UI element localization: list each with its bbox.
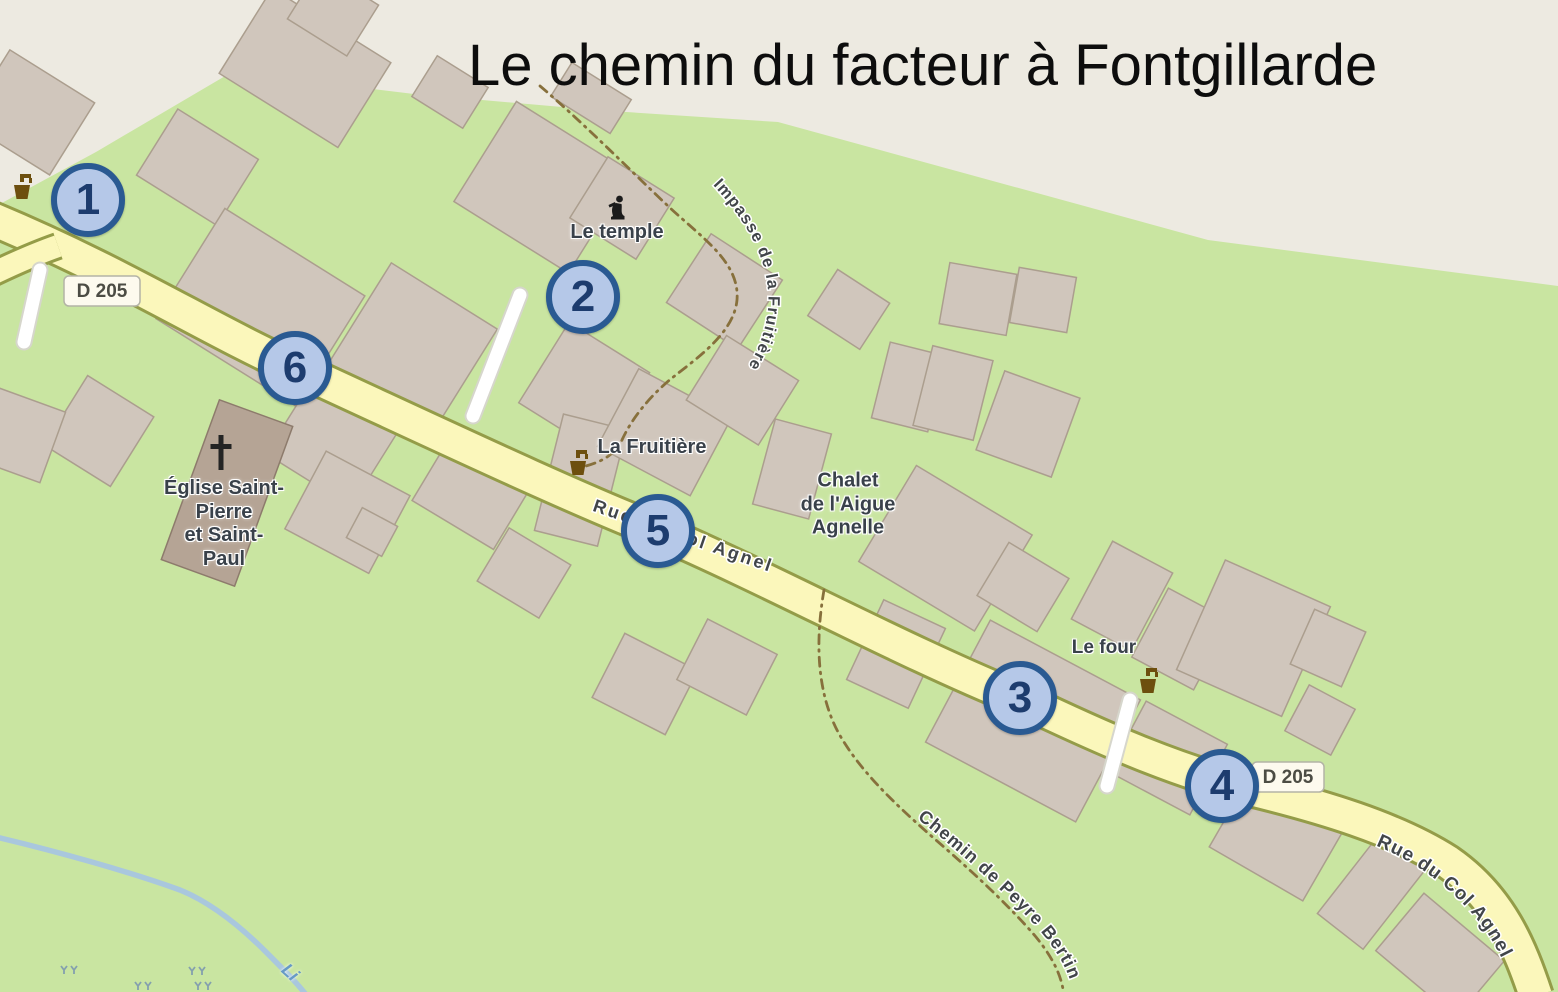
svg-text:D 205: D 205 <box>77 281 128 302</box>
map-canvas: Impasse de la Fruitière Chemin de Peyre … <box>0 0 1558 992</box>
label-la-fruitiere: La Fruitière <box>598 436 707 460</box>
route-marker-5-number: 5 <box>646 506 670 556</box>
route-marker-3-number: 3 <box>1008 673 1032 723</box>
route-marker-4-number: 4 <box>1210 761 1234 811</box>
route-marker-1[interactable]: 1 <box>51 163 125 237</box>
route-marker-3[interactable]: 3 <box>983 661 1057 735</box>
label-le-four: Le four <box>1072 637 1136 659</box>
road-ref-badge: D 205 <box>1252 762 1324 792</box>
road-ref-badge: D 205 <box>64 276 140 306</box>
route-marker-2-number: 2 <box>571 272 595 322</box>
route-marker-1-number: 1 <box>76 175 100 225</box>
route-marker-6-number: 6 <box>283 343 307 393</box>
route-marker-4[interactable]: 4 <box>1185 749 1259 823</box>
route-marker-5[interactable]: 5 <box>621 494 695 568</box>
label-eglise-saint-pierre-et-saint-paul: Église Saint- Pierre et Saint- Paul <box>164 477 284 571</box>
label-le-temple: Le temple <box>570 221 663 245</box>
page-title: Le chemin du facteur à Fontgillarde <box>468 34 1377 98</box>
route-marker-6[interactable]: 6 <box>258 331 332 405</box>
svg-text:D 205: D 205 <box>1263 767 1314 788</box>
label-chalet-aigue-agnelle: Chalet de l'Aigue Agnelle <box>801 470 896 541</box>
route-marker-2[interactable]: 2 <box>546 260 620 334</box>
